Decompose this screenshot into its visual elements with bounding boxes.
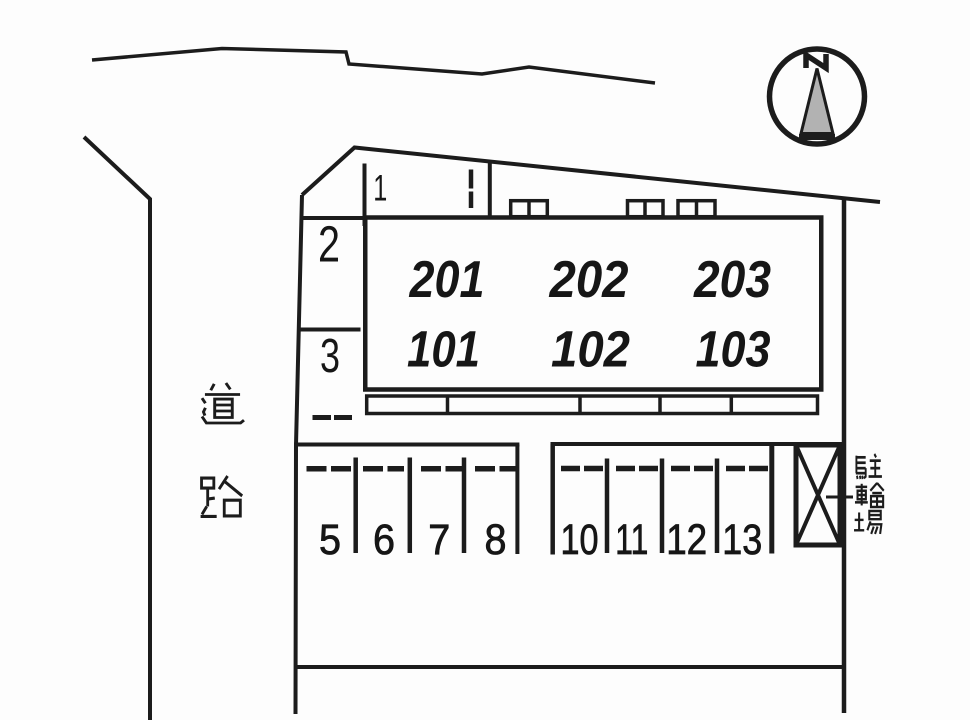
svg-text:202: 202 — [549, 250, 629, 308]
svg-text:12: 12 — [666, 516, 707, 564]
svg-text:201: 201 — [409, 250, 485, 308]
svg-text:1: 1 — [373, 167, 387, 208]
svg-text:3: 3 — [320, 330, 340, 383]
svg-text:102: 102 — [551, 321, 630, 378]
svg-text:101: 101 — [407, 321, 480, 378]
svg-text:203: 203 — [693, 250, 771, 308]
svg-text:6: 6 — [373, 516, 395, 564]
svg-text:7: 7 — [428, 516, 450, 564]
svg-text:8: 8 — [485, 516, 507, 564]
svg-text:11: 11 — [615, 516, 648, 564]
svg-text:10: 10 — [561, 516, 599, 564]
svg-text:5: 5 — [319, 516, 341, 564]
svg-text:13: 13 — [722, 516, 762, 564]
svg-text:2: 2 — [318, 216, 340, 273]
svg-text:103: 103 — [696, 321, 771, 378]
